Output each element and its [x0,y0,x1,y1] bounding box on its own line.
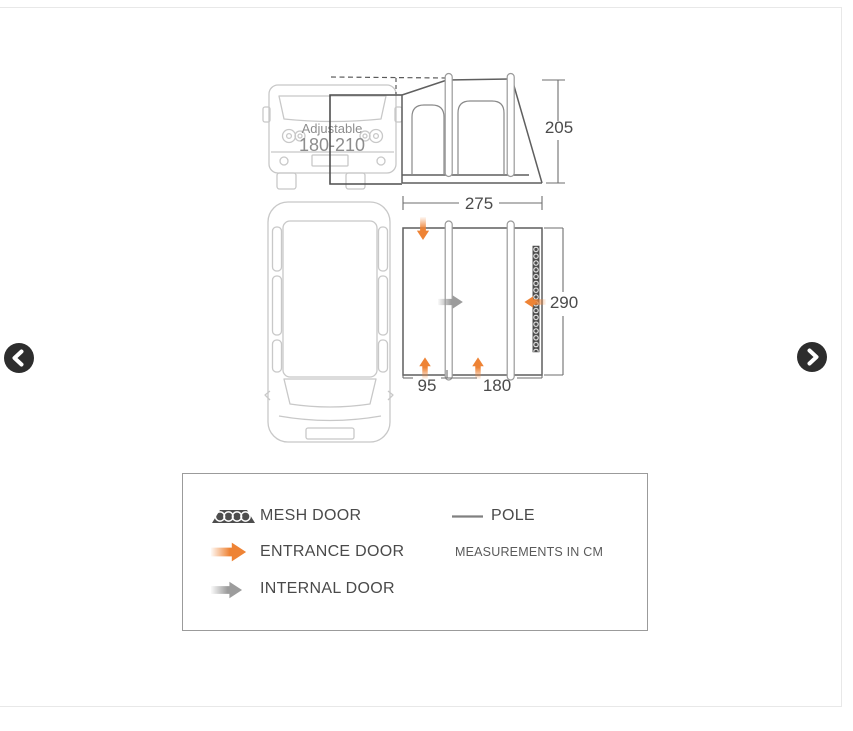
dimension-height-label: 205 [545,118,573,137]
awning-front-elevation [402,74,542,184]
dimension-width-label: 275 [465,194,493,213]
legend-measurements-note: MEASUREMENTS IN CM [455,545,603,559]
legend-pole-label: POLE [491,507,535,525]
carousel-next-button[interactable] [797,342,827,372]
dimension-left-section-label: 95 [418,376,437,395]
entrance-door-arrows [417,217,546,379]
legend-entrance-door-label: ENTRANCE DOOR [260,543,404,561]
mesh-door-swatch-icon [210,508,257,524]
legend-internal-door-label: INTERNAL DOOR [260,580,395,598]
legend-mesh-door-label: MESH DOOR [260,507,361,525]
carousel-prev-button[interactable] [4,343,34,373]
van-adjustable-note: Adjustable [302,121,363,136]
chevron-left-icon [4,343,34,373]
awning-dimensions-diagram: Adjustable 180-210 205 275 [255,58,600,458]
dimension-depth-label: 290 [550,293,578,312]
van-top-illustration [265,202,393,442]
dimension-right-section-label: 180 [483,376,511,395]
van-adjustable-range: 180-210 [299,135,365,155]
awning-top-plan [403,221,542,380]
pole-line-icon [451,514,485,519]
mesh-door-strip [533,246,539,352]
diagram-legend: MESH DOOR ENTRANCE DOOR INTERNAL DOOR PO… [182,473,648,631]
internal-door-arrow-icon [209,580,249,600]
chevron-right-icon [797,342,827,372]
entrance-door-arrow-icon [209,542,249,562]
